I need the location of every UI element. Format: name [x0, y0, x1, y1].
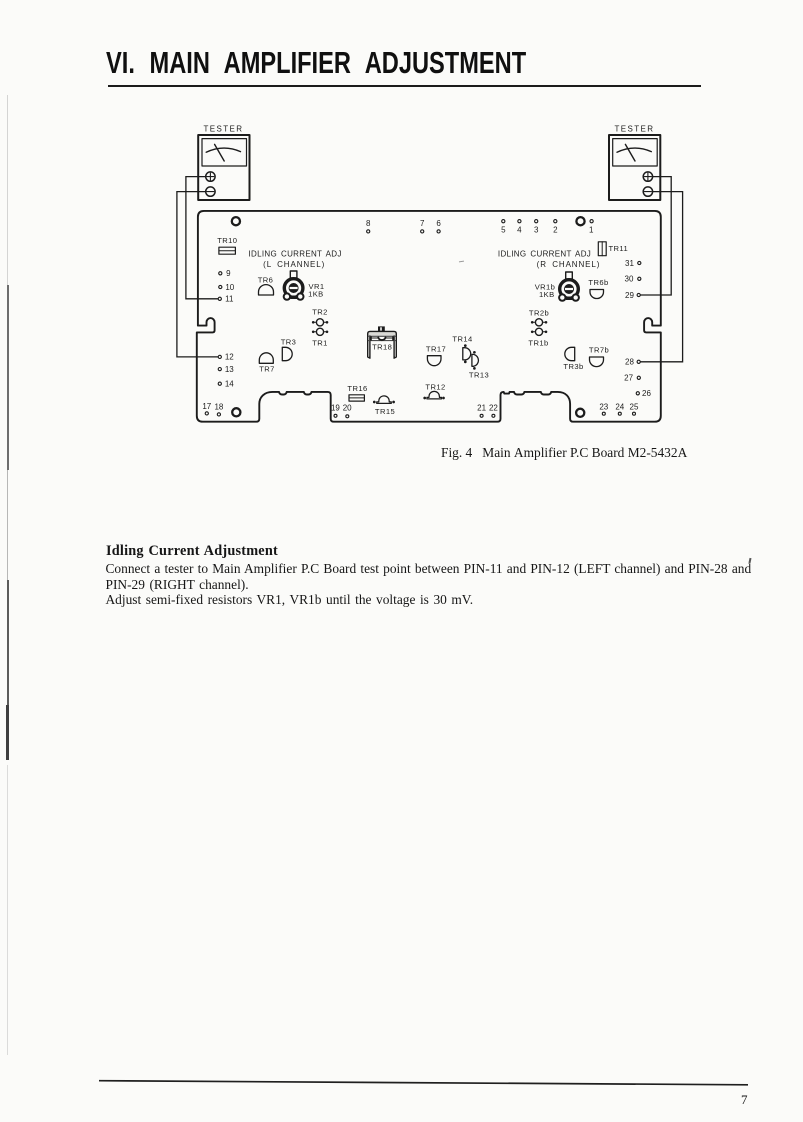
svg-text:11: 11: [225, 295, 234, 304]
svg-text:1KB: 1KB: [539, 290, 555, 299]
svg-text:TR7: TR7: [259, 364, 275, 373]
svg-text:29: 29: [625, 291, 634, 300]
svg-text:TR6: TR6: [258, 276, 274, 285]
svg-text:TR11: TR11: [609, 244, 629, 253]
svg-text:23: 23: [599, 402, 608, 411]
svg-text:18: 18: [214, 403, 223, 412]
svg-text:28: 28: [625, 358, 634, 367]
svg-text:TR1: TR1: [312, 338, 328, 347]
svg-text:5: 5: [501, 225, 506, 234]
svg-text:TR2b: TR2b: [529, 309, 549, 318]
svg-text:10: 10: [225, 283, 234, 292]
svg-text:1KB: 1KB: [308, 290, 324, 299]
svg-text:TR16: TR16: [347, 384, 367, 393]
svg-text:IDLING CURRENT ADJ: IDLING CURRENT ADJ: [249, 249, 342, 258]
svg-text:(R CHANNEL): (R CHANNEL): [537, 260, 601, 269]
svg-text:TESTER: TESTER: [204, 125, 244, 134]
svg-text:TR12: TR12: [425, 382, 445, 391]
svg-text:6: 6: [436, 219, 441, 228]
svg-text:TR10: TR10: [217, 236, 237, 245]
svg-text:3: 3: [534, 225, 539, 234]
svg-text:TR3: TR3: [281, 337, 297, 346]
svg-text:13: 13: [225, 365, 234, 374]
svg-text:22: 22: [489, 403, 498, 412]
svg-text:TR7b: TR7b: [589, 346, 609, 355]
svg-text:1: 1: [589, 225, 594, 234]
svg-text:TR15: TR15: [375, 407, 395, 416]
svg-text:TR13: TR13: [469, 370, 489, 379]
svg-text:TR2: TR2: [312, 308, 328, 317]
svg-text:(L CHANNEL): (L CHANNEL): [263, 260, 325, 269]
svg-text:20: 20: [343, 403, 352, 412]
svg-text:TR17: TR17: [426, 345, 446, 354]
svg-text:TR3b: TR3b: [563, 362, 583, 371]
svg-text:TR14: TR14: [452, 335, 472, 344]
svg-text:9: 9: [226, 269, 231, 278]
svg-text:26: 26: [642, 389, 651, 398]
svg-text:TR18: TR18: [372, 343, 392, 352]
svg-text:4: 4: [517, 225, 522, 234]
svg-text:17: 17: [202, 402, 211, 411]
svg-text:24: 24: [615, 402, 624, 411]
svg-text:IDLING CURRENT ADJ: IDLING CURRENT ADJ: [498, 249, 591, 258]
svg-text:8: 8: [366, 219, 371, 228]
svg-text:25: 25: [630, 402, 639, 411]
svg-text:2: 2: [553, 225, 558, 234]
svg-text:12: 12: [225, 353, 234, 362]
svg-text:TESTER: TESTER: [615, 125, 655, 134]
svg-text:27: 27: [624, 374, 633, 383]
svg-text:31: 31: [625, 259, 634, 268]
svg-text:TR1b: TR1b: [528, 338, 548, 347]
svg-text:19: 19: [331, 403, 340, 412]
svg-text:21: 21: [477, 403, 486, 412]
svg-text:TR6b: TR6b: [588, 278, 608, 287]
svg-text:30: 30: [625, 275, 634, 284]
svg-text:7: 7: [420, 219, 425, 228]
svg-text:14: 14: [225, 380, 234, 389]
